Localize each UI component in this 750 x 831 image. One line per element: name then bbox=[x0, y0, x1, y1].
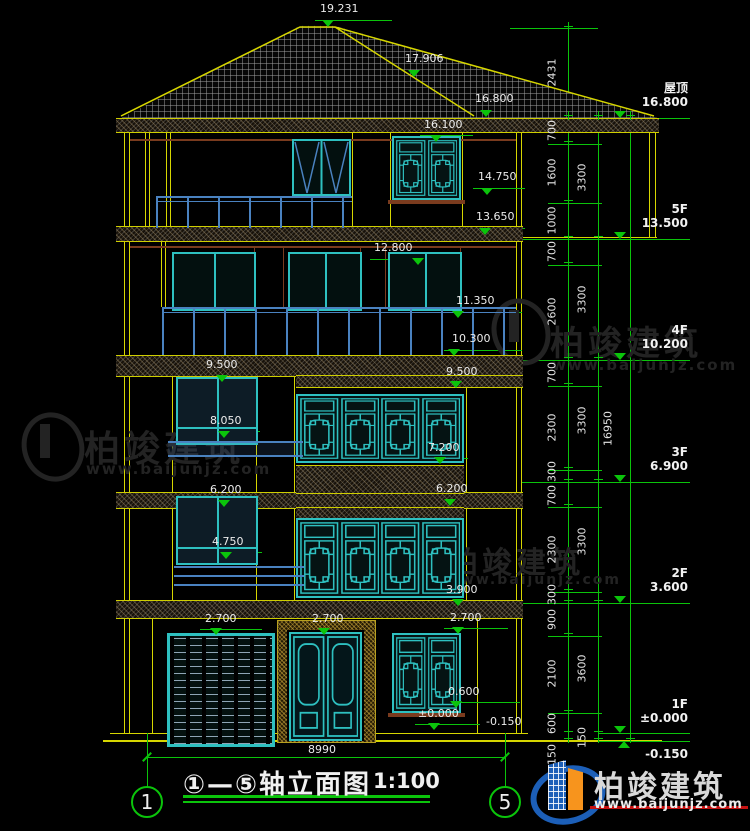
pier-line bbox=[161, 240, 162, 307]
pier-line bbox=[165, 240, 166, 307]
watermark-logo bbox=[13, 404, 94, 490]
elevation-marker-zero: ±0.000 bbox=[418, 708, 459, 720]
dim-tick bbox=[626, 738, 635, 739]
wing-parapet-line bbox=[523, 237, 657, 238]
pier-trim bbox=[283, 248, 284, 307]
window-sill bbox=[388, 200, 465, 204]
marker-triangle bbox=[412, 258, 424, 265]
dim-tick bbox=[564, 633, 573, 634]
dim-tick bbox=[564, 115, 573, 116]
dim-tick bbox=[564, 467, 573, 468]
marker-triangle bbox=[452, 627, 464, 634]
watermark-url: www.baijunjz.com bbox=[552, 356, 737, 374]
floor-elevation: 3.600 bbox=[600, 581, 688, 594]
dim-total: 16950 bbox=[602, 407, 615, 451]
dim-tick bbox=[564, 383, 573, 384]
axis-bubble-5: 5 bbox=[489, 786, 521, 818]
dim-value: 3300 bbox=[576, 278, 589, 322]
elevation-marker-4-750: 4.750 bbox=[212, 536, 244, 548]
dim-tick bbox=[564, 26, 573, 27]
drawing-scale: 1:100 bbox=[373, 769, 440, 793]
stair-window-lower bbox=[176, 496, 258, 565]
marker-triangle bbox=[479, 228, 491, 235]
dim-tick bbox=[564, 141, 573, 142]
axis-bubble-1: 1 bbox=[131, 786, 163, 818]
marker-triangle bbox=[318, 628, 330, 635]
marker-triangle bbox=[210, 628, 222, 635]
window-4f-middle bbox=[288, 252, 362, 311]
dim-tick bbox=[594, 731, 603, 732]
floor-label: 3F bbox=[600, 446, 688, 459]
floor-band-4f-lower bbox=[296, 375, 523, 388]
drawing-title: ①—⑤轴立面图 bbox=[183, 764, 371, 801]
dim-value: 3300 bbox=[576, 156, 589, 200]
dim-value: 3600 bbox=[576, 647, 589, 691]
marker-triangle bbox=[322, 20, 334, 27]
marker-triangle bbox=[480, 110, 492, 117]
dim-tick bbox=[564, 504, 573, 505]
dim-tick bbox=[594, 479, 603, 480]
window-mullion bbox=[214, 254, 216, 309]
axis-line bbox=[505, 733, 506, 787]
wall-line bbox=[521, 131, 522, 734]
lattice-pane bbox=[381, 522, 420, 594]
elevation-marker-minus-150: -0.150 bbox=[486, 716, 521, 728]
eave-band bbox=[116, 118, 659, 133]
dim-tick bbox=[594, 236, 603, 237]
overall-width-dim: 8990 bbox=[305, 744, 339, 756]
dim-value: 2300 bbox=[546, 406, 559, 450]
pier-line bbox=[477, 617, 478, 734]
lattice-pane bbox=[428, 140, 458, 196]
elevation-marker-9-500-right: 9.500 bbox=[446, 366, 478, 378]
dim-value: 2300 bbox=[546, 528, 559, 572]
brand-logo-building-orange bbox=[568, 768, 583, 810]
floor-band-5f bbox=[116, 226, 523, 242]
dim-value: 3300 bbox=[576, 520, 589, 564]
marker-triangle bbox=[444, 499, 456, 506]
base-elevation-label: -0.150 bbox=[600, 748, 688, 761]
dim-tick bbox=[564, 262, 573, 263]
floor-elevation: ±0.000 bbox=[600, 712, 688, 725]
dim-tick bbox=[594, 115, 603, 116]
marker-triangle bbox=[218, 431, 230, 438]
lattice-pane bbox=[428, 637, 458, 709]
elevation-marker-10-300: 10.300 bbox=[452, 333, 491, 345]
brand-url: www.baijunjz.com bbox=[594, 797, 743, 812]
window-mullion bbox=[217, 498, 219, 563]
lattice-pane bbox=[341, 398, 380, 459]
elevation-marker-6-200-right: 6.200 bbox=[436, 483, 468, 495]
floor-label: 1F bbox=[600, 698, 688, 711]
pier-trim bbox=[385, 248, 386, 307]
marker-triangle bbox=[450, 381, 462, 388]
elevation-marker-16-100: 16.100 bbox=[424, 119, 463, 131]
marker-triangle bbox=[452, 599, 464, 606]
window-4f-left bbox=[172, 252, 256, 311]
window-mullion bbox=[325, 254, 327, 309]
pier-line bbox=[152, 617, 153, 734]
trim-line bbox=[130, 246, 516, 248]
dim-tick bbox=[564, 589, 573, 590]
dim-tick bbox=[564, 236, 573, 237]
floor-triangle bbox=[614, 353, 626, 360]
balcony-railing-5f bbox=[156, 196, 352, 228]
elevation-marker-3-900: 3.900 bbox=[446, 584, 478, 596]
dim-value: 700 bbox=[546, 109, 559, 153]
title-underline bbox=[183, 801, 430, 803]
dim-value: 3300 bbox=[576, 399, 589, 443]
dim-value: 2100 bbox=[546, 652, 559, 696]
floor-line bbox=[598, 603, 690, 604]
dim-tick bbox=[594, 738, 603, 739]
dim-tick bbox=[564, 738, 573, 739]
canopy-beam bbox=[168, 441, 303, 457]
dim-value: 900 bbox=[546, 598, 559, 642]
lattice-pane bbox=[396, 140, 426, 196]
dim-value: 700 bbox=[546, 351, 559, 395]
elevation-marker-6-200-left: 6.200 bbox=[210, 484, 242, 496]
floor-triangle bbox=[614, 232, 626, 239]
marker-triangle bbox=[448, 349, 460, 356]
axis-line bbox=[147, 733, 148, 787]
marker-triangle bbox=[216, 375, 228, 382]
floor-label: 4F bbox=[600, 324, 688, 337]
dim-tick bbox=[594, 357, 603, 358]
floor-elevation: 6.900 bbox=[600, 460, 688, 473]
door-panel bbox=[327, 636, 359, 737]
lattice-pane bbox=[300, 522, 339, 594]
entry-door bbox=[289, 632, 362, 741]
elevation-drawing: 柏竣建筑 www.baijunjz.com 柏竣建筑 www.baijunjz.… bbox=[0, 0, 750, 831]
lattice-pane bbox=[396, 637, 426, 709]
window-4f-right bbox=[388, 252, 462, 311]
elevation-marker-ridge: 19.231 bbox=[320, 3, 359, 15]
dim-value: 700 bbox=[546, 474, 559, 518]
elevation-marker-13-650: 13.650 bbox=[476, 211, 515, 223]
dim-value: 150 bbox=[576, 716, 589, 760]
marker-triangle bbox=[220, 552, 232, 559]
floor-label: 5F bbox=[600, 203, 688, 216]
floor-triangle bbox=[614, 111, 626, 118]
floor-label: 屋顶 bbox=[600, 82, 688, 95]
marker-triangle bbox=[434, 457, 446, 464]
watermark-logo-bar bbox=[40, 424, 50, 458]
dim-tick bbox=[564, 479, 573, 480]
floor-triangle bbox=[614, 475, 626, 482]
door-panel bbox=[293, 636, 325, 737]
marker-triangle bbox=[218, 500, 230, 507]
elevation-marker-2-700-window: 2.700 bbox=[450, 612, 482, 624]
floor-line bbox=[598, 239, 690, 240]
elevation-marker-eave: 16.800 bbox=[475, 93, 514, 105]
pier-line bbox=[352, 131, 353, 226]
floor-label: 2F bbox=[600, 567, 688, 580]
wall-line bbox=[516, 131, 517, 734]
floor-line bbox=[598, 482, 690, 483]
floor-line bbox=[598, 733, 690, 734]
floor-elevation: 10.200 bbox=[600, 338, 688, 351]
floor-triangle-up bbox=[618, 741, 630, 748]
marker-triangle bbox=[408, 70, 420, 77]
window-mullion bbox=[425, 254, 427, 309]
elevation-marker-8-050: 8.050 bbox=[210, 415, 242, 427]
elevation-marker-12-800: 12.800 bbox=[374, 242, 413, 254]
elevation-marker-2-700-door: 2.700 bbox=[312, 613, 344, 625]
dim-value: 700 bbox=[546, 230, 559, 274]
window-transom bbox=[178, 427, 256, 429]
elevation-marker-9-500-left: 9.500 bbox=[206, 359, 238, 371]
lattice-window-5f bbox=[392, 136, 461, 200]
marker-triangle bbox=[481, 188, 493, 195]
pier-line bbox=[462, 131, 463, 226]
pier-line bbox=[145, 131, 146, 226]
lattice-window-2f bbox=[296, 518, 464, 598]
dim-tick bbox=[564, 600, 573, 601]
brand-logo-building-blue bbox=[548, 760, 566, 810]
elevation-marker-14-750: 14.750 bbox=[478, 171, 517, 183]
elevation-marker-2-700-garage: 2.700 bbox=[205, 613, 237, 625]
floor-elevation: 16.800 bbox=[600, 96, 688, 109]
marker-line bbox=[415, 724, 480, 725]
marker-triangle bbox=[428, 723, 440, 730]
dim-value: 2431 bbox=[546, 51, 559, 95]
dim-tick bbox=[564, 710, 573, 711]
dim-value: 1600 bbox=[546, 151, 559, 195]
marker-triangle bbox=[452, 311, 464, 318]
pier-line bbox=[390, 131, 391, 226]
stair-window-upper bbox=[176, 377, 258, 445]
marker-triangle bbox=[430, 135, 442, 142]
floor-elevation: 13.500 bbox=[600, 217, 688, 230]
elevation-marker-0-600: 0.600 bbox=[448, 686, 480, 698]
watermark-url: www.baijunjz.com bbox=[86, 460, 271, 478]
pier-line bbox=[149, 131, 150, 226]
dim-tick bbox=[594, 600, 603, 601]
floor-line bbox=[598, 741, 690, 742]
lattice-pane bbox=[300, 398, 339, 459]
roof-outline bbox=[116, 24, 659, 118]
pier-line bbox=[172, 357, 173, 617]
dim-tick bbox=[564, 200, 573, 201]
railing-2f-left bbox=[174, 561, 304, 586]
lattice-pane bbox=[381, 398, 420, 459]
elevation-marker-7-200: 7.200 bbox=[428, 442, 460, 454]
dim-value: 2600 bbox=[546, 290, 559, 334]
dim-line bbox=[598, 118, 599, 741]
elevation-marker-roof-break: 17.906 bbox=[405, 53, 444, 65]
elevation-marker-11-350: 11.350 bbox=[456, 295, 495, 307]
floor-triangle bbox=[614, 726, 626, 733]
balcony-door bbox=[292, 139, 351, 196]
dim-tick bbox=[564, 731, 573, 732]
dim-tick bbox=[626, 115, 635, 116]
dim-tick bbox=[564, 357, 573, 358]
overall-dim-line bbox=[147, 757, 505, 758]
lattice-pane bbox=[341, 522, 380, 594]
garage-door bbox=[167, 633, 275, 747]
floor-triangle bbox=[614, 596, 626, 603]
